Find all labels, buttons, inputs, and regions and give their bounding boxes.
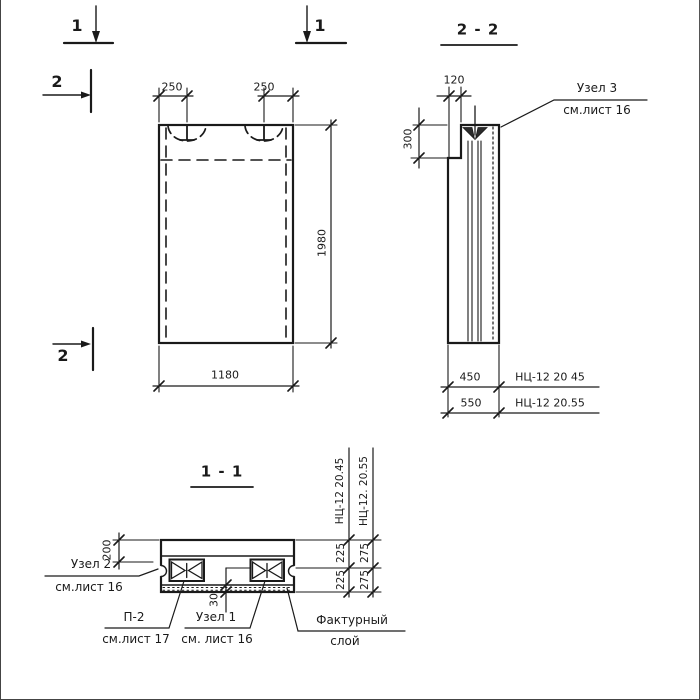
dim-275-bottom: 275 (360, 570, 371, 590)
node3-label: Узел 3 (577, 82, 617, 94)
dim-250-right: 250 (254, 82, 275, 93)
p2-ref: см.лист 17 (102, 633, 170, 645)
dim-1180: 1180 (211, 370, 239, 381)
lifting-loop-left (168, 125, 206, 141)
node1-label: Узел 1 (196, 611, 236, 623)
section-2-2-title: 2 - 2 (457, 23, 500, 38)
section11-groove-right (289, 566, 297, 577)
dim-250-left: 250 (162, 82, 183, 93)
panel-mark-55-vertical: НЦ-12. 20.55 (359, 456, 370, 526)
node1-ref: см. лист 16 (181, 633, 252, 645)
p2-label: П-2 (124, 611, 145, 623)
section-marker-2-top (43, 70, 91, 112)
finish-layer-label-line1: Фактурный (316, 614, 388, 626)
marker-1-left-label: 1 (71, 18, 82, 34)
panel-mark-55: НЦ-12 20.55 (515, 398, 585, 409)
panel-mark-45: НЦ-12 20 45 (515, 372, 585, 383)
right-arrow-icon (81, 92, 91, 99)
lifting-loop-right (245, 125, 283, 141)
dim-225-top: 225 (336, 543, 347, 563)
drawing-sheet: 1 1 2 2 2 - 2 1 - 1 250 250 1980 1180 12… (0, 0, 700, 700)
node2-ref: см.лист 16 (55, 581, 123, 593)
dim-550: 550 (461, 398, 482, 409)
front-view-hidden-edges (161, 128, 291, 341)
node3-ref: см.лист 16 (563, 104, 631, 116)
side-view-dimension-lines (419, 96, 599, 413)
down-arrow-icon (303, 31, 311, 43)
panel-mark-45-vertical: НЦ-12 20.45 (335, 458, 346, 525)
dim-275-top: 275 (360, 543, 371, 563)
marker-2-bottom-label: 2 (57, 348, 68, 364)
finish-layer-label-line2: слой (330, 635, 359, 647)
side-view-outline (448, 125, 499, 343)
section-1-1-title: 1 - 1 (201, 465, 244, 480)
right-arrow-icon (81, 341, 91, 348)
dim-450: 450 (460, 372, 481, 383)
dim-225-bottom: 225 (336, 570, 347, 590)
section11-groove-left (159, 566, 167, 577)
marker-1-right-label: 1 (314, 18, 325, 34)
dim-1980: 1980 (317, 229, 328, 257)
marker-2-top-label: 2 (51, 74, 62, 90)
front-view-outline (159, 125, 293, 343)
node2-label: Узел 2 (71, 558, 111, 570)
down-arrow-icon (92, 31, 100, 43)
dim-120: 120 (444, 75, 465, 86)
dim-30: 30 (209, 593, 220, 607)
dim-300: 300 (403, 129, 414, 150)
